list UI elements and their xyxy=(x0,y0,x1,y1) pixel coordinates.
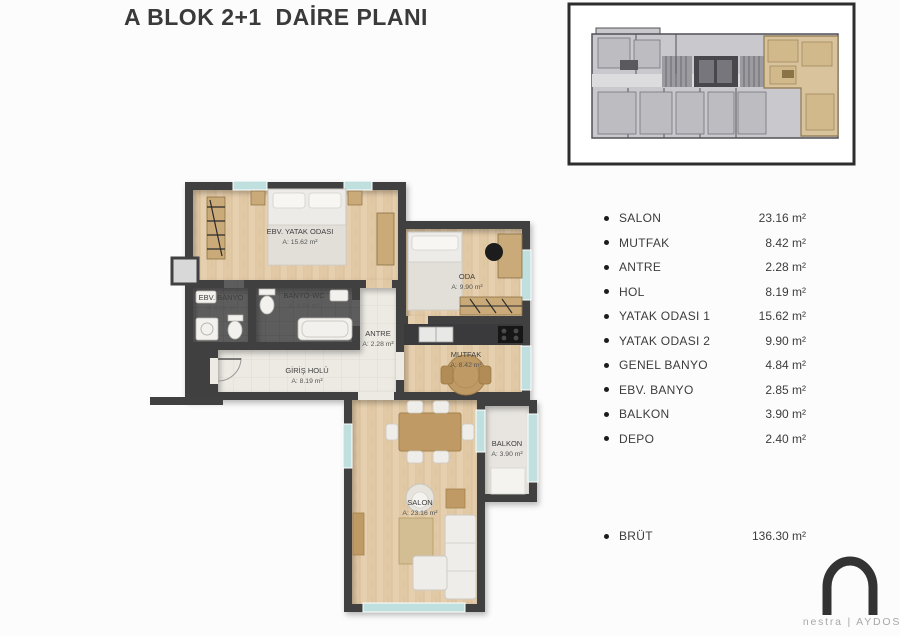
legend-value: 4.84 m² xyxy=(765,358,806,372)
party-wall-stub xyxy=(150,397,223,405)
window-bedroom-1 xyxy=(233,181,267,190)
legend-row: MUTFAK 8.42 m² xyxy=(604,231,806,256)
legend-value: 3.90 m² xyxy=(765,407,806,421)
room-label: BALKON xyxy=(492,439,522,448)
legend-total-value: 136.30 m² xyxy=(752,529,806,543)
window-kitchen xyxy=(521,346,531,390)
toilet xyxy=(228,321,242,339)
bullet-icon xyxy=(604,436,609,441)
window-oda xyxy=(521,250,531,300)
dresser xyxy=(377,213,394,265)
bullet-icon xyxy=(604,363,609,368)
legend-row: ANTRE 2.28 m² xyxy=(604,255,806,280)
legend-label: YATAK ODASI 1 xyxy=(619,309,710,323)
legend-row: SALON 23.16 m² xyxy=(604,206,806,231)
desk-chair xyxy=(485,243,503,261)
room-area: A: 3.90 m² xyxy=(491,451,523,458)
pillow xyxy=(273,193,305,208)
ottoman xyxy=(413,556,447,590)
bullet-icon xyxy=(604,534,609,539)
legend-value: 2.85 m² xyxy=(765,383,806,397)
chair xyxy=(407,401,423,413)
bullet-icon xyxy=(604,338,609,343)
toilet xyxy=(260,296,274,314)
legend-label: ANTRE xyxy=(619,260,661,274)
bullet-icon xyxy=(604,314,609,319)
room-label: BANYO-WC xyxy=(283,291,325,300)
pillow xyxy=(412,236,458,250)
toilet-tank xyxy=(259,289,275,295)
legend-label: DEPO xyxy=(619,432,654,446)
toilet-tank xyxy=(228,315,243,321)
legend-row: DEPO 2.40 m² xyxy=(604,427,806,452)
legend-value: 9.90 m² xyxy=(765,334,806,348)
pillow xyxy=(309,193,341,208)
legend-row: BALKON 3.90 m² xyxy=(604,402,806,427)
room-area: A: 15.62 m² xyxy=(282,239,318,246)
window-balcony xyxy=(528,414,538,482)
chair xyxy=(386,424,398,440)
bullet-icon xyxy=(604,289,609,294)
legend-label: MUTFAK xyxy=(619,236,669,250)
sink xyxy=(330,290,348,301)
room-label: GİRİŞ HOLÜ xyxy=(285,366,328,375)
chair xyxy=(433,451,449,463)
room-label: MUTFAK xyxy=(451,350,481,359)
bullet-icon xyxy=(604,216,609,221)
room-label: ODA xyxy=(459,272,475,281)
legend-label: BALKON xyxy=(619,407,670,421)
legend-value: 23.16 m² xyxy=(759,211,806,225)
legend-row: YATAK ODASI 2 9.90 m² xyxy=(604,329,806,354)
bullet-icon xyxy=(604,412,609,417)
room-area: A: 2.85 m² xyxy=(205,305,237,312)
legend-row: EBV. BANYO 2.85 m² xyxy=(604,378,806,403)
legend-row: GENEL BANYO 4.84 m² xyxy=(604,353,806,378)
legend-label: GENEL BANYO xyxy=(619,358,708,372)
floor-plan-page: A BLOK 2+1 DAİRE PLANI xyxy=(0,0,900,636)
room-area: A: 8.42 m² xyxy=(450,362,482,369)
room-legend: SALON 23.16 m² MUTFAK 8.42 m² ANTRE 2.28… xyxy=(604,206,806,549)
bullet-icon xyxy=(604,265,609,270)
apartment-plan: EBV. YATAK ODASI A: 15.62 m² ODA A: 9.90… xyxy=(150,181,538,612)
room-label: EBV. YATAK ODASI xyxy=(267,227,334,236)
legend-total-label: BRÜT xyxy=(619,529,653,543)
window-salon-side xyxy=(343,424,352,468)
chair xyxy=(462,424,474,440)
bullet-icon xyxy=(604,240,609,245)
room-area: A: 8.19 m² xyxy=(291,378,323,385)
legend-row: HOL 8.19 m² xyxy=(604,280,806,305)
room-area: A: 2.28 m² xyxy=(362,341,394,348)
legend-value: 2.40 m² xyxy=(765,432,806,446)
chair xyxy=(407,451,423,463)
room-label: ANTRE xyxy=(365,329,390,338)
tv-console xyxy=(353,513,364,555)
sofa xyxy=(445,515,476,599)
balcony-door-glass xyxy=(476,410,485,452)
logo-arch-icon xyxy=(827,561,873,615)
bullet-icon xyxy=(604,387,609,392)
nightstand xyxy=(348,191,362,205)
legend-label: SALON xyxy=(619,211,661,225)
nightstand xyxy=(251,191,265,205)
building-overview xyxy=(569,4,854,164)
chair xyxy=(433,401,449,413)
legend-value: 15.62 m² xyxy=(759,309,806,323)
legend-total-row: BRÜT 136.30 m² xyxy=(604,524,806,549)
room-area: A: 9.90 m² xyxy=(451,284,483,291)
legend-value: 8.19 m² xyxy=(765,285,806,299)
logo-wordmark: nestra | AYDOS xyxy=(792,616,900,628)
legend-value: 8.42 m² xyxy=(765,236,806,250)
stove xyxy=(498,326,523,343)
logo xyxy=(827,561,873,615)
room-area: A: 23.16 m² xyxy=(402,510,438,517)
side-table xyxy=(446,489,465,508)
legend-label: YATAK ODASI 2 xyxy=(619,334,710,348)
window-bedroom-2 xyxy=(344,181,372,190)
legend-row: YATAK ODASI 1 15.62 m² xyxy=(604,304,806,329)
dining-table xyxy=(399,413,461,451)
legend-label: HOL xyxy=(619,285,645,299)
room-area: A: 4.84 m² xyxy=(288,303,320,310)
room-label: SALON xyxy=(407,498,432,507)
balcony-rug xyxy=(491,468,525,494)
room-label: EBV. BANYO xyxy=(199,293,244,302)
legend-value: 2.28 m² xyxy=(765,260,806,274)
shaft-block xyxy=(172,258,198,284)
window-salon xyxy=(363,603,465,612)
washing-machine xyxy=(196,318,218,340)
legend-label: EBV. BANYO xyxy=(619,383,694,397)
